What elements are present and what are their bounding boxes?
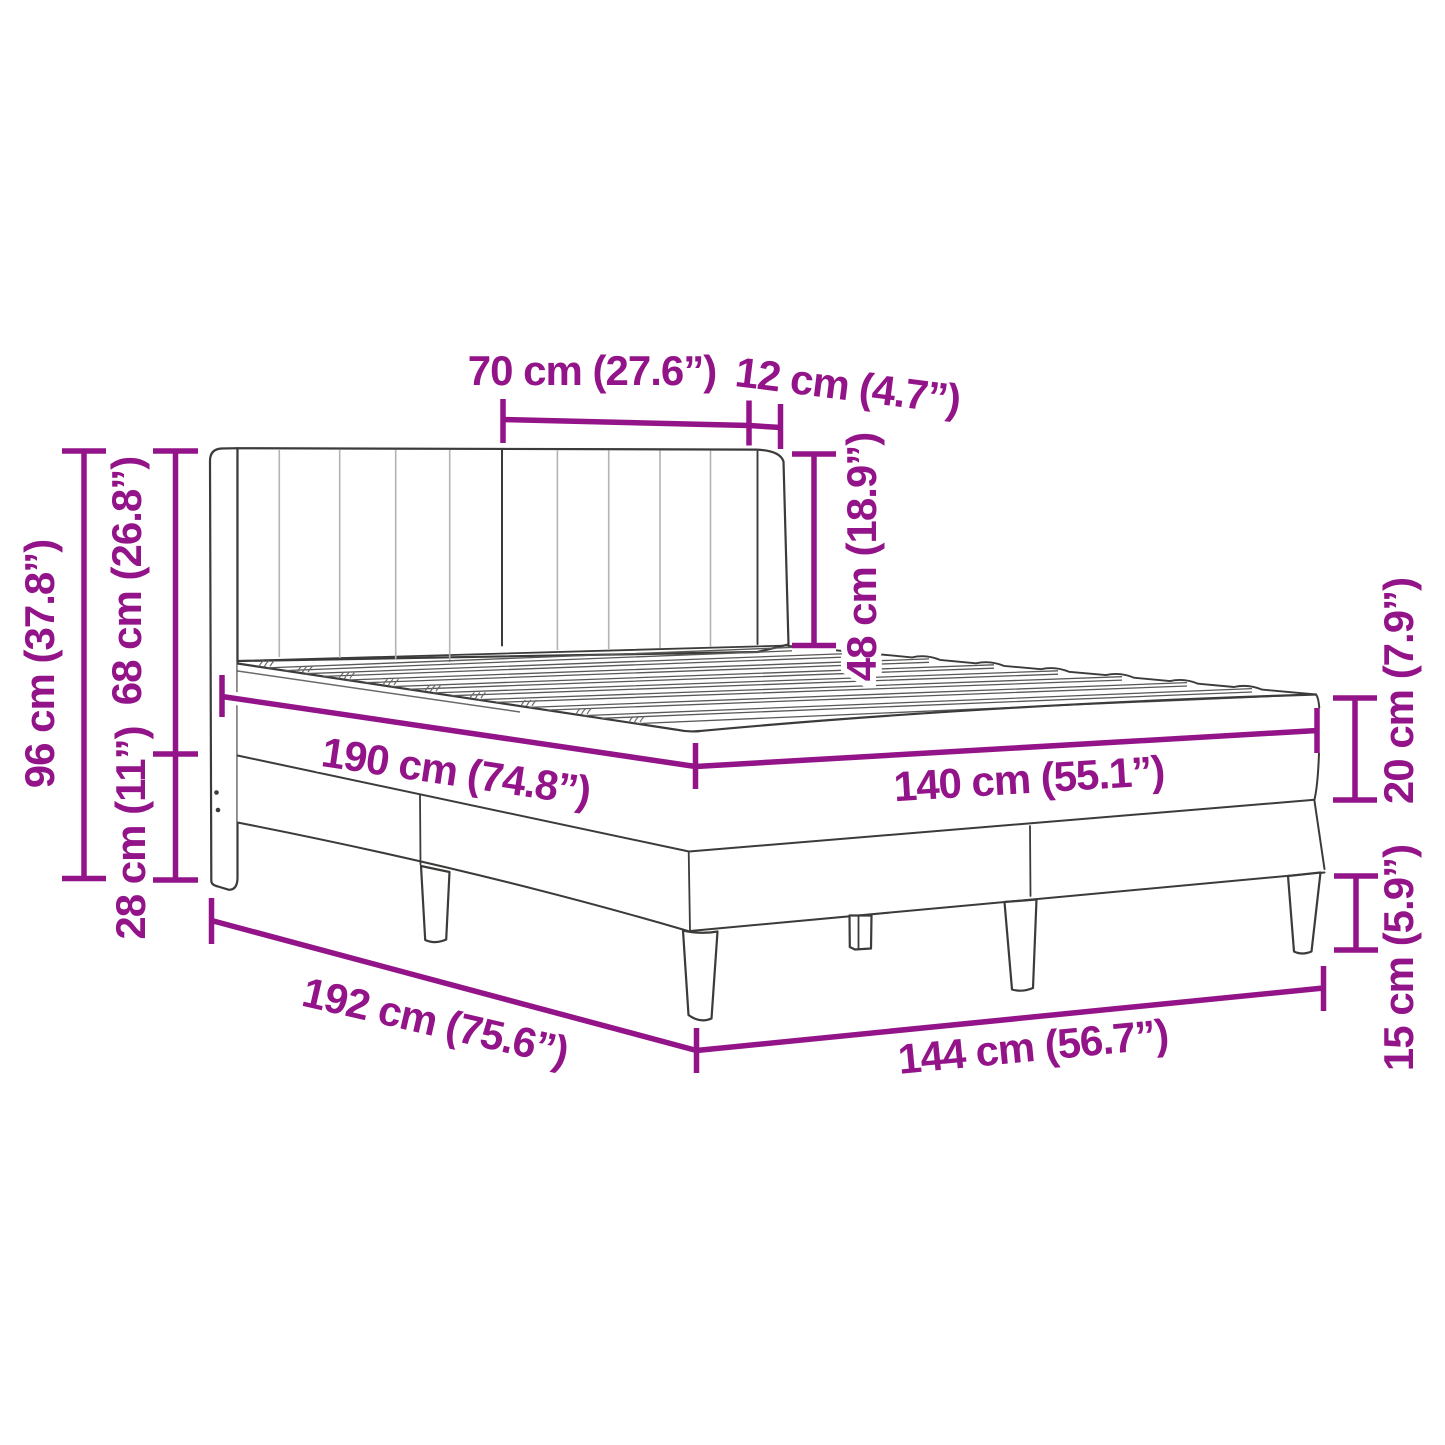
svg-text:96 cm (37.8”): 96 cm (37.8”) [16,540,63,788]
svg-text:70 cm (27.6”): 70 cm (27.6”) [468,347,716,394]
svg-text:48 cm (18.9”): 48 cm (18.9”) [838,433,885,681]
svg-text:15 cm (5.9”): 15 cm (5.9”) [1375,845,1422,1071]
svg-text:28 cm (11”): 28 cm (11”) [107,726,154,939]
svg-text:68 cm (26.8”): 68 cm (26.8”) [103,457,150,705]
svg-text:20 cm (7.9”): 20 cm (7.9”) [1375,578,1422,804]
